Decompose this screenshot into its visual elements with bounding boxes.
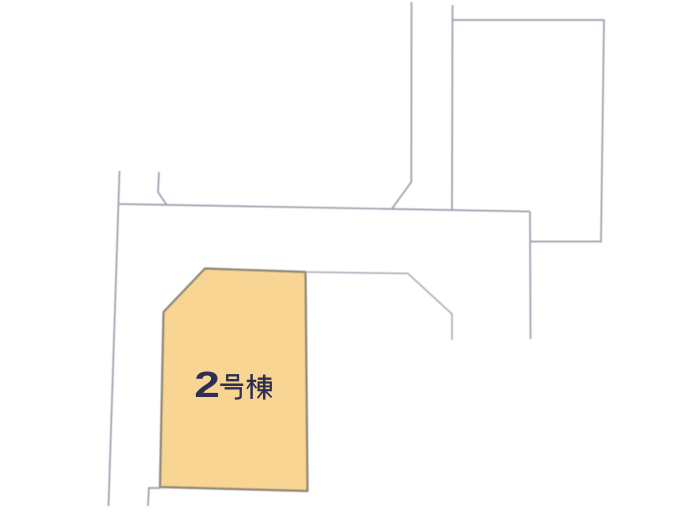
svg-text:2: 2 xyxy=(194,365,220,405)
